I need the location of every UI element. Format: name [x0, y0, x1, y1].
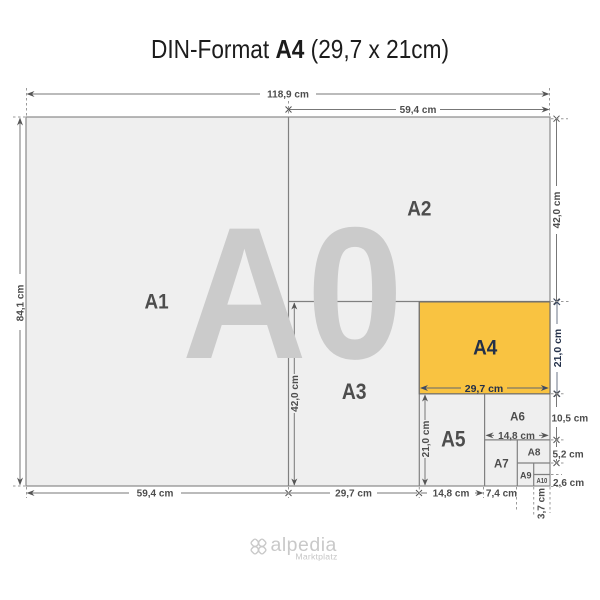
svg-text:7,4 cm: 7,4 cm — [486, 489, 517, 500]
svg-text:A4: A4 — [473, 337, 497, 360]
svg-text:A0: A0 — [182, 188, 403, 398]
svg-text:5,2 cm: 5,2 cm — [553, 450, 584, 461]
svg-text:A1: A1 — [145, 290, 169, 313]
svg-text:59,4 cm: 59,4 cm — [137, 489, 174, 500]
svg-text:A6: A6 — [510, 412, 525, 424]
svg-text:A3: A3 — [342, 380, 367, 404]
svg-text:21,0 cm: 21,0 cm — [552, 329, 564, 368]
svg-text:10,5 cm: 10,5 cm — [552, 414, 589, 425]
svg-text:A5: A5 — [441, 427, 465, 452]
svg-text:84,1 cm: 84,1 cm — [16, 285, 27, 322]
svg-text:14,8 cm: 14,8 cm — [433, 489, 470, 500]
svg-text:DIN-Format A4 (29,7 x 21cm): DIN-Format A4 (29,7 x 21cm) — [151, 34, 449, 64]
svg-text:118,9 cm: 118,9 cm — [267, 90, 309, 101]
svg-text:42,0 cm: 42,0 cm — [552, 192, 563, 229]
svg-text:A10: A10 — [536, 478, 547, 486]
svg-text:21,0 cm: 21,0 cm — [421, 421, 432, 458]
svg-text:2,6 cm: 2,6 cm — [553, 478, 584, 489]
svg-text:A2: A2 — [407, 197, 431, 220]
svg-text:29,7 cm: 29,7 cm — [335, 489, 372, 500]
svg-text:29,7 cm: 29,7 cm — [465, 383, 504, 395]
svg-text:3,7 cm: 3,7 cm — [537, 488, 548, 519]
svg-text:A7: A7 — [494, 458, 509, 470]
svg-text:A9: A9 — [520, 471, 532, 481]
svg-text:59,4 cm: 59,4 cm — [400, 105, 437, 116]
svg-text:Marktplatz: Marktplatz — [295, 552, 337, 562]
svg-text:14,8 cm: 14,8 cm — [498, 431, 535, 442]
svg-text:A8: A8 — [528, 448, 541, 459]
